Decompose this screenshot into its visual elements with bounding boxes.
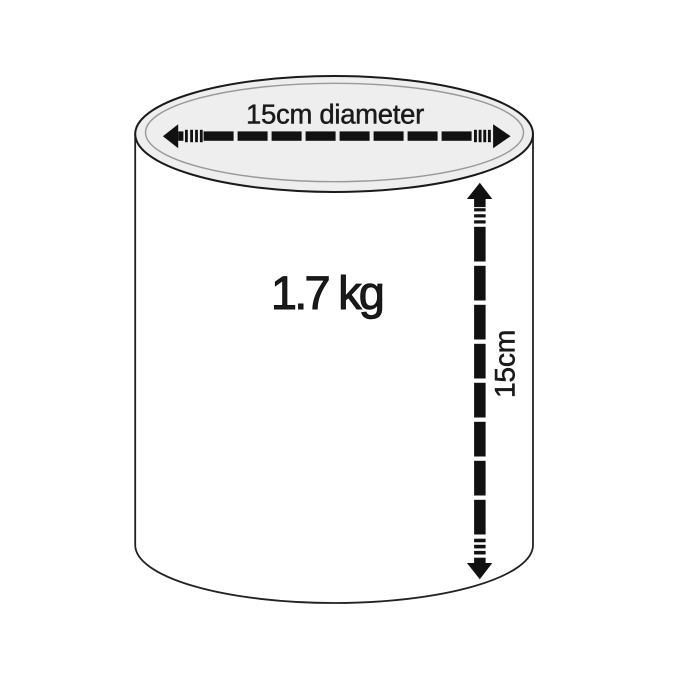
svg-text:15cm diameter: 15cm diameter: [246, 99, 424, 130]
svg-text:15cm: 15cm: [489, 330, 521, 398]
svg-text:1.7 kg: 1.7 kg: [271, 266, 383, 319]
